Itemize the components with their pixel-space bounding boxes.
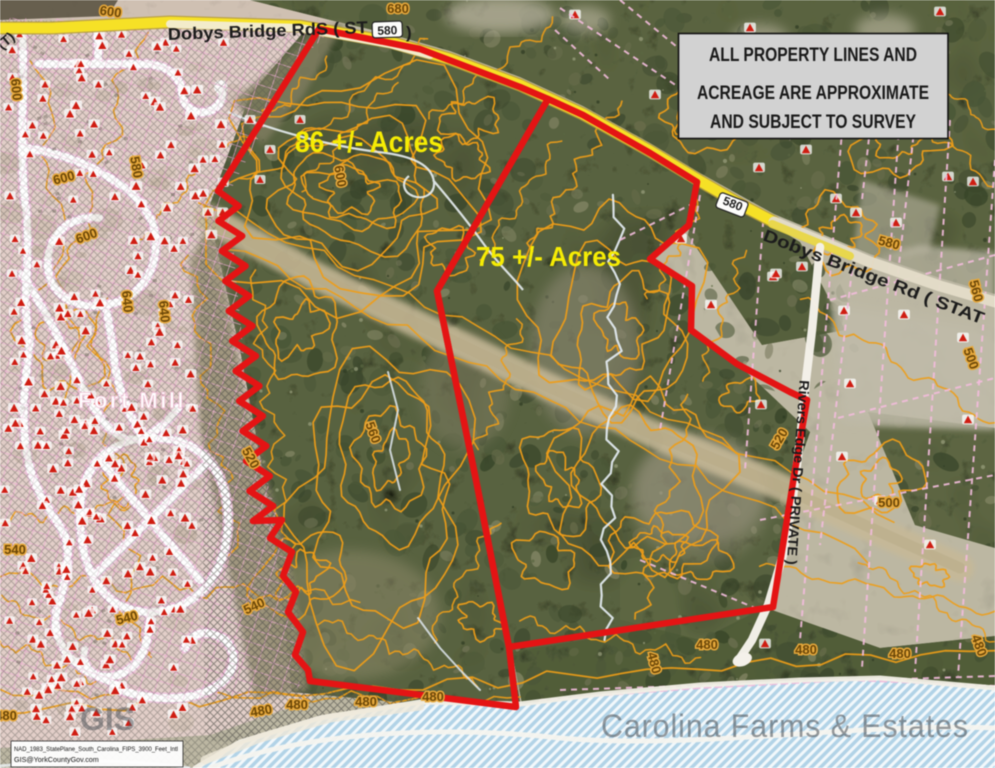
svg-text:480: 480 — [355, 694, 377, 709]
svg-text:): ) — [406, 23, 412, 42]
svg-text:AND SUBJECT TO SURVEY: AND SUBJECT TO SURVEY — [710, 112, 916, 133]
svg-text:640: 640 — [119, 290, 136, 313]
svg-text:Carolina Farms & Estates: Carolina Farms & Estates — [601, 708, 969, 744]
svg-text:580: 580 — [377, 23, 398, 38]
svg-text:GIS: GIS — [80, 701, 135, 737]
svg-text:Fort Mill: Fort Mill — [78, 388, 186, 413]
svg-text:75 +/- Acres: 75 +/- Acres — [476, 241, 621, 272]
svg-text:600: 600 — [99, 3, 123, 21]
svg-text:540: 540 — [4, 542, 26, 557]
svg-text:86 +/- Acres: 86 +/- Acres — [295, 126, 443, 159]
svg-text:680: 680 — [387, 1, 409, 16]
svg-text:600: 600 — [8, 78, 25, 101]
svg-text:480: 480 — [795, 642, 817, 657]
svg-text:480: 480 — [696, 637, 718, 652]
svg-text:480: 480 — [889, 646, 911, 661]
svg-text:480: 480 — [286, 697, 308, 712]
svg-text:GIS@YorkCountyGov.com: GIS@YorkCountyGov.com — [14, 755, 99, 764]
svg-text:640: 640 — [156, 300, 173, 323]
svg-text:500: 500 — [878, 495, 900, 510]
svg-text:ACREAGE ARE APPROXIMATE: ACREAGE ARE APPROXIMATE — [697, 83, 929, 104]
svg-text:480: 480 — [0, 708, 17, 723]
svg-text:480: 480 — [422, 689, 444, 704]
svg-text:ALL PROPERTY LINES AND: ALL PROPERTY LINES AND — [709, 45, 917, 66]
svg-text:NAD_1983_StatePlane_South_Caro: NAD_1983_StatePlane_South_Carolina_FIPS_… — [14, 746, 178, 753]
